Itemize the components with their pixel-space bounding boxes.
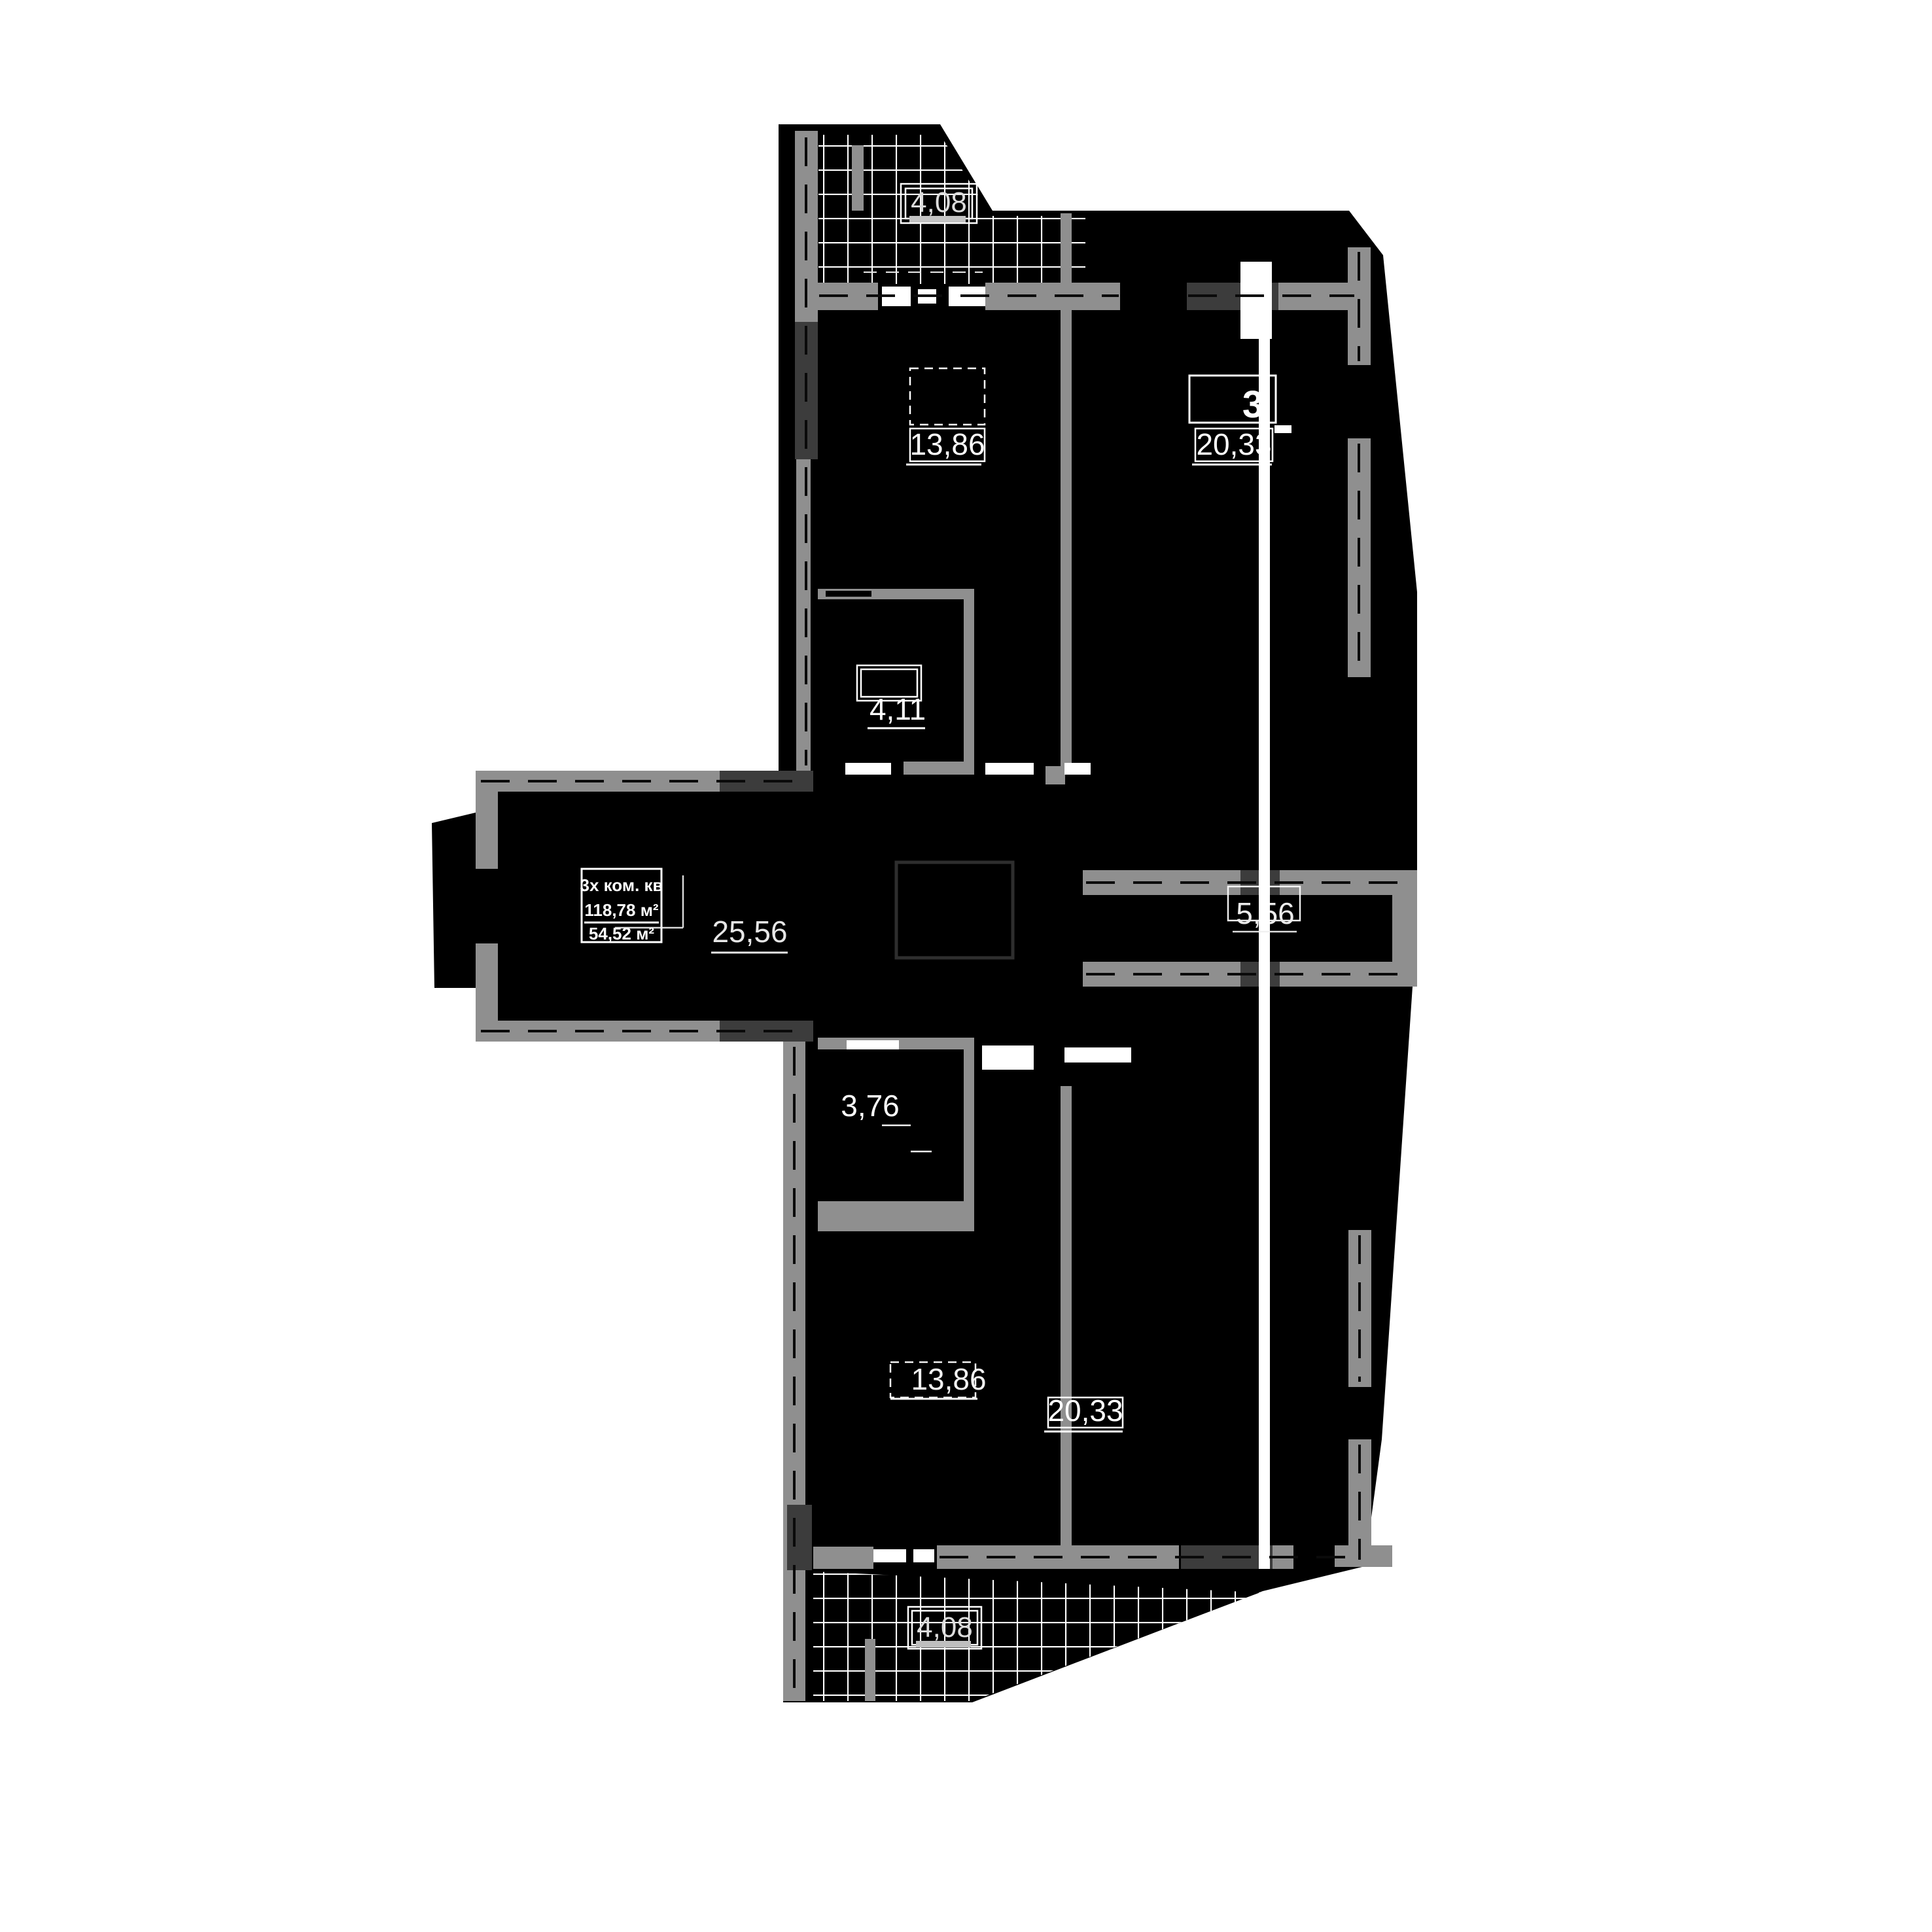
- wall-segment: [852, 145, 864, 211]
- wall-room-divider-top: [1061, 213, 1072, 772]
- annotation-glyph: 3: [1242, 383, 1263, 426]
- wall-segment: [783, 1042, 805, 1701]
- area-value: 13,86: [909, 427, 985, 461]
- apartment-total-area: 118,78 м²: [584, 900, 659, 920]
- area-value: 13,86: [911, 1362, 986, 1396]
- wall-detail: [826, 591, 871, 597]
- wall-segment: [865, 1639, 875, 1701]
- wall-segment: [964, 599, 974, 772]
- wall-segment: [985, 283, 1120, 310]
- apartment-info-box: 3х ком. кв 118,78 м² 54,52 м²: [580, 869, 663, 943]
- door-opening: [982, 1045, 1034, 1070]
- apartment-living-area: 54,52 м²: [589, 924, 655, 943]
- area-value: 3,76: [841, 1089, 900, 1123]
- area-value: 5,56: [1236, 896, 1295, 930]
- window-opening: [873, 1549, 906, 1562]
- wall-room-divider-bottom: [1061, 1086, 1072, 1545]
- wall-segment: [964, 1038, 974, 1203]
- wall-segment: [813, 1547, 873, 1569]
- wall-segment: [1045, 766, 1065, 784]
- label-balcony-top: 4,08: [901, 184, 977, 223]
- wall-segment: [818, 1201, 974, 1231]
- sill-mark: [916, 1641, 971, 1647]
- door-opening: [985, 763, 1034, 775]
- mark: [1274, 425, 1291, 433]
- window-opening: [913, 1549, 934, 1562]
- wall-segment: [796, 459, 811, 771]
- sill-mark: [909, 216, 966, 222]
- floor-plan-drawing: 4,08 13,86 3 20,33 4,11: [0, 0, 1932, 1932]
- area-value: 4,11: [869, 692, 926, 726]
- wall-segment: [476, 943, 498, 1021]
- door-opening: [1064, 763, 1091, 775]
- wall-segment: [476, 792, 498, 869]
- area-value: 20,33: [1047, 1394, 1123, 1428]
- door-opening: [1064, 1047, 1131, 1063]
- label-room-bottom-right: 20,33: [1044, 1394, 1123, 1431]
- door-opening: [847, 1040, 899, 1049]
- balcony-bottom-hatch: [813, 1572, 1260, 1701]
- wall-dark-segment: [787, 1505, 812, 1570]
- label-balcony-bottom: 4,08: [908, 1607, 981, 1649]
- door-opening: [1240, 262, 1272, 339]
- light-slit: [1259, 338, 1270, 1569]
- wall-segment: [904, 762, 974, 775]
- area-value: 25,56: [712, 915, 787, 949]
- area-value: 20,33: [1196, 427, 1271, 461]
- area-value: 4,08: [911, 186, 967, 219]
- floor-plan-page: 4,08 13,86 3 20,33 4,11: [0, 0, 1932, 1932]
- wall-segment: [1392, 895, 1417, 962]
- door-opening: [845, 763, 891, 775]
- apartment-type: 3х ком. кв: [580, 875, 663, 895]
- area-value: 4,08: [917, 1611, 973, 1643]
